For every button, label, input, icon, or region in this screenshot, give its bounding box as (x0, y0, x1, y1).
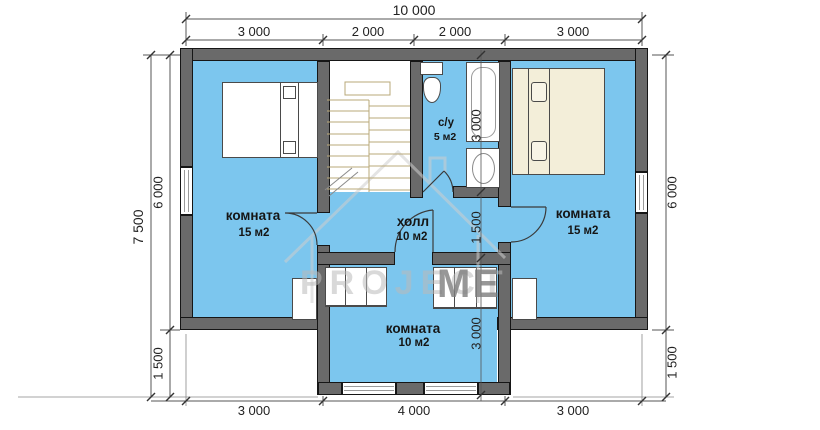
window-left (180, 167, 193, 215)
sink-basin (472, 153, 495, 184)
bed-line (298, 83, 299, 157)
wall-bottomroom-pier-right (478, 382, 510, 395)
dim-right-2: 1 500 (665, 333, 680, 393)
wall-top (180, 48, 648, 61)
room-label-left: комната (193, 208, 313, 223)
wall-left-lower (180, 215, 193, 330)
room-area-bath: 5 м2 (415, 131, 475, 143)
toilet-tank (420, 62, 443, 75)
pillow (283, 86, 296, 99)
room-area-right: 15 м2 (523, 225, 643, 237)
dim-bottom-1: 3 000 (214, 403, 294, 418)
dim-left-2: 1 500 (151, 334, 166, 394)
pillow (283, 141, 296, 154)
dim-top-3: 2 000 (415, 24, 495, 39)
bed-headboard-line (528, 69, 529, 174)
wall-bottomroom-pier-mid (396, 382, 424, 395)
dim-left-total: 7 500 (130, 197, 146, 257)
bed-line (549, 69, 550, 174)
wall-right-upper (635, 48, 648, 172)
dim-top-4: 3 000 (533, 24, 613, 39)
room-area-hall: 10 м2 (352, 231, 472, 243)
room-area-left: 15 м2 (194, 227, 314, 239)
dim-inner-1: 3 000 (469, 96, 484, 156)
wall-bottomroom-pier-left (318, 382, 342, 395)
wall-left-upper (180, 48, 193, 167)
bed-double-right (512, 68, 605, 175)
room-area-bottom: 10 м2 (354, 337, 474, 349)
dim-right-1: 6 000 (665, 163, 680, 223)
room-label-right: комната (523, 206, 643, 221)
dim-left-1: 6 000 (151, 163, 166, 223)
dim-bottom-2: 4 000 (374, 403, 454, 418)
bed-line (280, 83, 281, 157)
room-label-hall: холл (353, 214, 473, 229)
room-label-bath: с/у (416, 117, 476, 129)
dim-bottom-3: 3 000 (533, 403, 613, 418)
stairwell (327, 61, 410, 192)
wall-stairs-bath (410, 61, 423, 198)
watermark-me: ME (437, 262, 501, 307)
dim-top-total: 10 000 (374, 2, 454, 18)
window-bottom-1 (342, 382, 396, 395)
pillow (531, 141, 547, 161)
pillow (531, 82, 547, 102)
dim-inner-3: 3 000 (469, 304, 484, 364)
dim-top-1: 3 000 (214, 24, 294, 39)
dim-inner-2: 1 500 (469, 198, 484, 258)
dim-top-2: 2 000 (328, 24, 408, 39)
room-label-bottom: комната (353, 321, 473, 336)
closet-rightroom (512, 278, 537, 320)
window-bottom-2 (424, 382, 478, 395)
wall-leftroom-stairs (317, 61, 330, 213)
bed-double-left (222, 82, 318, 158)
floor-plan: PROJECT ME комната 15 м2 холл 10 м2 с/у … (0, 0, 820, 430)
